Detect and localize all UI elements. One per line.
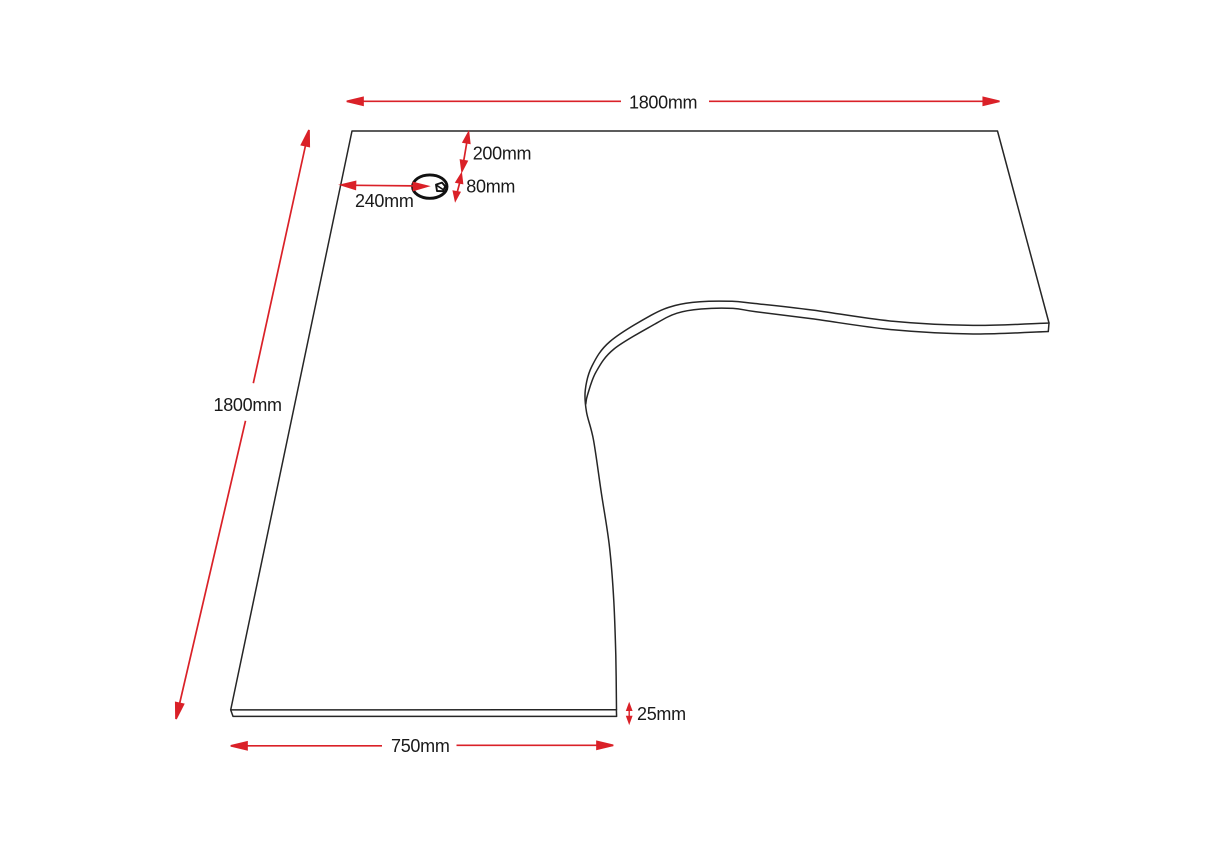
svg-text:1800mm: 1800mm [214, 395, 282, 415]
svg-text:240mm: 240mm [355, 191, 414, 211]
svg-text:1800mm: 1800mm [629, 92, 697, 112]
svg-text:25mm: 25mm [637, 704, 686, 724]
svg-text:80mm: 80mm [466, 177, 515, 197]
svg-text:750mm: 750mm [391, 736, 450, 756]
svg-text:200mm: 200mm [473, 143, 532, 163]
